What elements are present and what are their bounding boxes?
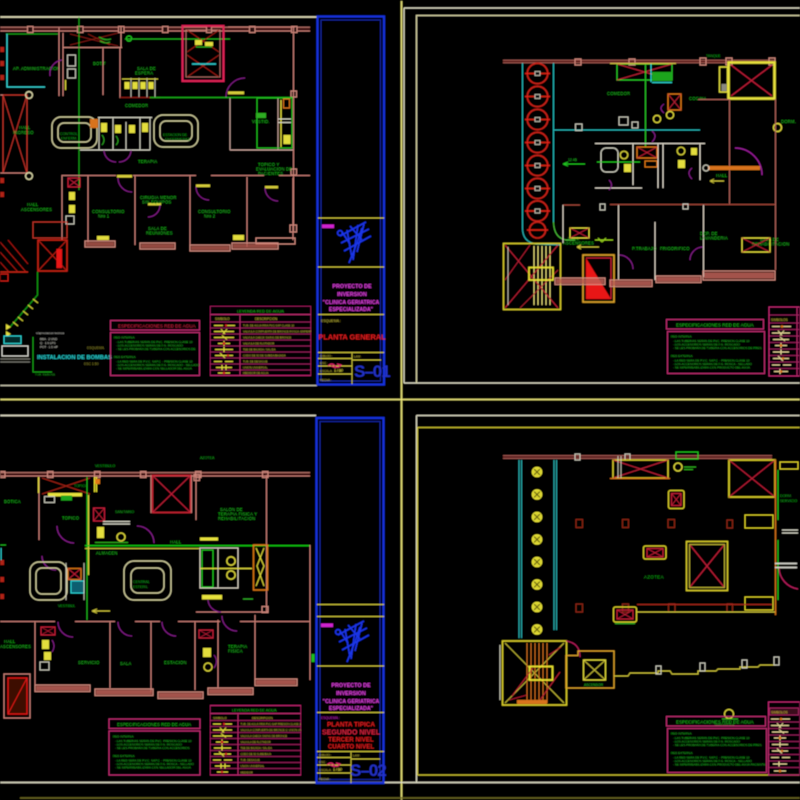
svg-text:HALL: HALL — [716, 173, 728, 178]
svg-text:SIMBOLOS: SIMBOLOS — [771, 318, 788, 322]
svg-text:MEDIDOR: MEDIDOR — [241, 771, 253, 775]
svg-text:ENFERMERAS: ENFERMERAS — [165, 138, 191, 142]
svg-text:RED EXTERNA:: RED EXTERNA: — [114, 355, 136, 359]
svg-text:- SE LES PROBARA DE TUBERIA CO: - SE LES PROBARA DE TUBERIA CON ACCESORI… — [115, 746, 189, 750]
svg-text:ASCENSORES: ASCENSORES — [21, 207, 52, 212]
svg-text:SALA: SALA — [120, 661, 132, 666]
svg-text:RED EXTERNA:: RED EXTERNA: — [671, 354, 693, 358]
svg-text:RED EXTERNA:: RED EXTERNA: — [671, 751, 693, 755]
svg-text:INVERSION: INVERSION — [337, 292, 367, 298]
svg-text:SIMBOLO: SIMBOLO — [213, 716, 227, 720]
svg-text:VESTIBULO: VESTIBULO — [95, 464, 115, 468]
svg-text:ESPECIFICACIONES RED DE AGU: ESPECIFICACIONES RED DE AGUA — [118, 324, 197, 329]
svg-text:FISICA: FISICA — [228, 649, 243, 654]
svg-text:ESQUEMA :: ESQUEMA : — [321, 716, 340, 720]
svg-text:DORM.: DORM. — [780, 494, 792, 498]
svg-text:VALVULA CHECK SWING DE BRO: VALVULA CHECK SWING DE BRONCE — [243, 335, 291, 339]
svg-text:PLANTA GENERAL: PLANTA GENERAL — [318, 333, 386, 342]
svg-text:UNION UNIVERSAL: UNION UNIVERSAL — [241, 764, 265, 768]
svg-text:- SE IMPERMEABILIZARA CON SELL: - SE IMPERMEABILIZARA CON SELLADOR DEL A… — [115, 766, 191, 770]
svg-text:UNION UNIVERSAL: UNION UNIVERSAL — [243, 365, 268, 369]
svg-text:BOTICA: BOTICA — [4, 499, 21, 504]
svg-text:S–02: S–02 — [350, 761, 386, 780]
svg-text:RED EXTERNA:: RED EXTERNA: — [113, 754, 135, 758]
svg-text:TANQUE: TANQUE — [706, 54, 721, 58]
svg-text:ESQUEMA :: ESQUEMA : — [321, 319, 341, 323]
svg-text:ESPECIFICACIONES RED DE AGU: ESPECIFICACIONES RED DE AGUA — [676, 323, 755, 328]
svg-text:- SE LES PROBARA DE TUBERIA CO: - SE LES PROBARA DE TUBERIA CON ACCESORI… — [116, 347, 195, 351]
svg-text:POT : 1.5 HP: POT : 1.5 HP — [40, 345, 58, 349]
svg-text:- SE LES PROBARA DE TUBERIA CO: - SE LES PROBARA DE TUBERIA CON ACCESORI… — [673, 346, 762, 350]
svg-text:ESTACION: ESTACION — [164, 660, 187, 665]
svg-text:SERVICIO: SERVICIO — [78, 660, 100, 665]
svg-text:ASCENSOR: ASCENSOR — [584, 683, 604, 687]
svg-text:INGRESO: INGRESO — [13, 130, 34, 135]
svg-text:INVERSION: INVERSION — [336, 691, 366, 697]
svg-text:- SE IMPERMEABILIZARA CON PROD: - SE IMPERMEABILIZARA CON PRODUCTO DEL A… — [673, 366, 750, 370]
svg-text:DESCRIPCION: DESCRIPCION — [255, 317, 278, 321]
svg-text:AZOTEA: AZOTEA — [644, 575, 664, 580]
svg-text:- SE LES PROBARA DE TUBERIA CO: - SE LES PROBARA DE TUBERIA CON ACCESORI… — [673, 743, 762, 747]
svg-text:LAM :: LAM : — [353, 754, 361, 758]
svg-text:TERCER NIVEL: TERCER NIVEL — [328, 737, 374, 744]
svg-text:SIMBOLOS: SIMBOLOS — [771, 711, 788, 715]
svg-text:LAVANDERIA: LAVANDERIA — [700, 235, 728, 240]
svg-text:"CLINICA GERIATRICA: "CLINICA GERIATRICA — [323, 699, 380, 705]
svg-text:ESPECIFICACIONES RED DE AGU: ESPECIFICACIONES RED DE AGUA — [117, 722, 191, 727]
svg-text:ENFERM.: ENFERM. — [61, 137, 77, 141]
svg-text:DIBUJO :: DIBUJO : — [319, 753, 332, 757]
svg-text:SEGUNDO NIVEL: SEGUNDO NIVEL — [322, 730, 381, 737]
svg-text:P.TRABAJO: P.TRABAJO — [632, 246, 657, 251]
svg-text:CODO DE 90 SUBE/BAJA: CODO DE 90 SUBE/BAJA — [241, 752, 272, 756]
svg-text:LEYENDA RED DE AGUA: LEYENDA RED DE AGUA — [232, 709, 277, 713]
svg-text:DIBUJO :: DIBUJO : — [320, 354, 333, 358]
svg-text:SERVICIO: SERVICIO — [780, 499, 797, 503]
svg-text:TUB. REBOSE: TUB. REBOSE — [35, 373, 55, 377]
svg-text:DESCRIPCION: DESCRIPCION — [252, 716, 273, 720]
svg-text:FECHA :: FECHA : — [320, 378, 332, 382]
svg-text:RED INTERNA:: RED INTERNA: — [671, 335, 692, 339]
svg-text:PROYECTO DE: PROYECTO DE — [331, 683, 371, 689]
svg-text:TEE DE BAJADA / SALIDA: TEE DE BAJADA / SALIDA — [241, 746, 273, 750]
svg-text:AZOTEA: AZOTEA — [200, 456, 215, 460]
svg-text:- SE IMPERMEABILIZARA CON SELL: - SE IMPERMEABILIZARA CON SELLADOR DEL A… — [116, 367, 192, 371]
svg-text:1 / 50: 1 / 50 — [333, 768, 342, 772]
svg-text:TERAPIA: TERAPIA — [138, 159, 157, 164]
svg-text:VALVULA DE FLOTADOR: VALVULA DE FLOTADOR — [243, 341, 274, 345]
svg-text:BOT.F: BOT.F — [93, 61, 106, 66]
svg-text:1 / 50: 1 / 50 — [334, 369, 343, 373]
svg-text:SANITARIO: SANITARIO — [115, 510, 134, 514]
svg-text:COCINA: COCINA — [689, 96, 707, 101]
svg-text:LEYENDA RED DE AGUA: LEYENDA RED DE AGUA — [237, 309, 284, 314]
svg-text:DORM.: DORM. — [781, 119, 796, 124]
svg-text:PROYECTO DE: PROYECTO DE — [332, 284, 372, 290]
svg-text:VESTID.: VESTID. — [252, 119, 270, 124]
svg-text:VALVULA DE FLOTADOR: VALVULA DE FLOTADOR — [241, 740, 271, 744]
svg-text:ALMACEN: ALMACEN — [96, 551, 118, 556]
svg-text:VESTIBUL: VESTIBUL — [58, 604, 75, 608]
svg-text:MEDIDOR DE AGUA: MEDIDOR DE AGUA — [243, 371, 269, 375]
svg-text:CUARTO NIVEL: CUARTO NIVEL — [328, 744, 375, 751]
svg-text:TUB. DE AGUA FRIA PVC-SAP CLAS: TUB. DE AGUA FRIA PVC-SAP CLASE 10 — [243, 323, 295, 327]
svg-text:COMEDOR: COMEDOR — [607, 91, 630, 96]
svg-text:AP. ADMINISTRACION: AP. ADMINISTRACION — [13, 66, 60, 71]
svg-text:ESC 1:50: ESC 1:50 — [84, 362, 99, 366]
svg-text:ESQUEMA: ESQUEMA — [87, 346, 105, 350]
svg-text:ESPERA: ESPERA — [135, 71, 153, 76]
svg-text:COMEDOR: COMEDOR — [125, 103, 148, 108]
svg-text:RED INTERNA:: RED INTERNA: — [113, 735, 134, 739]
svg-text:Nro 1: Nro 1 — [98, 214, 110, 219]
svg-text:ESPECIALIZADA": ESPECIALIZADA" — [329, 706, 374, 712]
svg-text:ESC :: ESC : — [319, 760, 327, 764]
svg-text:INSTALACION DE BOMBAS: INSTALACION DE BOMBAS — [37, 355, 112, 361]
svg-text:ESC :: ESC : — [320, 361, 328, 365]
svg-text:VALVULA CHECK SWING DE BRONCE: VALVULA CHECK SWING DE BRONCE — [241, 734, 288, 738]
svg-text:TUB. DE AGUA FRIA PVC-SAP PRES: TUB. DE AGUA FRIA PVC-SAP PRESION CLASE … — [241, 722, 303, 726]
svg-text:ESTACION DE: ESTACION DE — [163, 133, 188, 137]
svg-text:TUB. DESAGUE: TUB. DESAGUE — [241, 758, 261, 762]
svg-text:"CLINICA GERIATRICA: "CLINICA GERIATRICA — [323, 300, 380, 306]
svg-text:ESPECIFICACIONES RED DE AGU: ESPECIFICACIONES RED DE AGUA — [676, 720, 755, 725]
svg-text:ASCENSORES: ASCENSORES — [563, 240, 594, 245]
svg-text:CONTROL: CONTROL — [60, 132, 78, 136]
svg-text:s/apreciacion tecnica: s/apreciacion tecnica — [36, 331, 64, 335]
svg-text:TUB. DE DESAGUE: TUB. DE DESAGUE — [243, 359, 268, 363]
svg-text:S–01: S–01 — [354, 362, 390, 381]
svg-text:LAM :: LAM : — [354, 355, 362, 359]
svg-text:REHABILITACION: REHABILITACION — [218, 516, 255, 521]
svg-text:12.4B: 12.4B — [568, 158, 578, 162]
svg-text:Nro 2: Nro 2 — [204, 214, 216, 219]
svg-text:RED INTERNA:: RED INTERNA: — [671, 732, 692, 736]
svg-text:ESTERIL: ESTERIL — [133, 585, 148, 589]
svg-text:TEE DE BAJADA / SALIDA: TEE DE BAJADA / SALIDA — [243, 347, 276, 351]
svg-text:HALL: HALL — [170, 540, 182, 545]
svg-text:PACIENTES: PACIENTES — [258, 171, 283, 176]
svg-text:REUNIONES: REUNIONES — [146, 231, 173, 236]
svg-text:CODO DE 90 DE SUBIDA/BAJADA: CODO DE 90 DE SUBIDA/BAJADA — [243, 353, 286, 357]
svg-text:ESPECIALIZADA": ESPECIALIZADA" — [329, 307, 374, 313]
svg-text:- SE IMPERMEABILIZARA CON PROD: - SE IMPERMEABILIZARA CON PRODUCTO DEL A… — [673, 763, 765, 767]
svg-text:ASCENSORES: ASCENSORES — [0, 644, 31, 649]
svg-text:FRIGORIFICO: FRIGORIFICO — [660, 246, 690, 251]
svg-text:RED INTERNA:: RED INTERNA: — [114, 336, 135, 340]
svg-text:FECHA :: FECHA : — [319, 777, 331, 781]
svg-text:PLANTA TIPICA: PLANTA TIPICA — [327, 722, 375, 729]
svg-text:TOPICO: TOPICO — [74, 484, 88, 488]
svg-text:SIMBOLO: SIMBOLO — [215, 317, 230, 321]
svg-text:SIN EQUIPOS: SIN EQUIPOS — [142, 200, 171, 205]
svg-text:CENTRAL: CENTRAL — [133, 580, 150, 584]
svg-text:TOPICO: TOPICO — [62, 516, 80, 521]
